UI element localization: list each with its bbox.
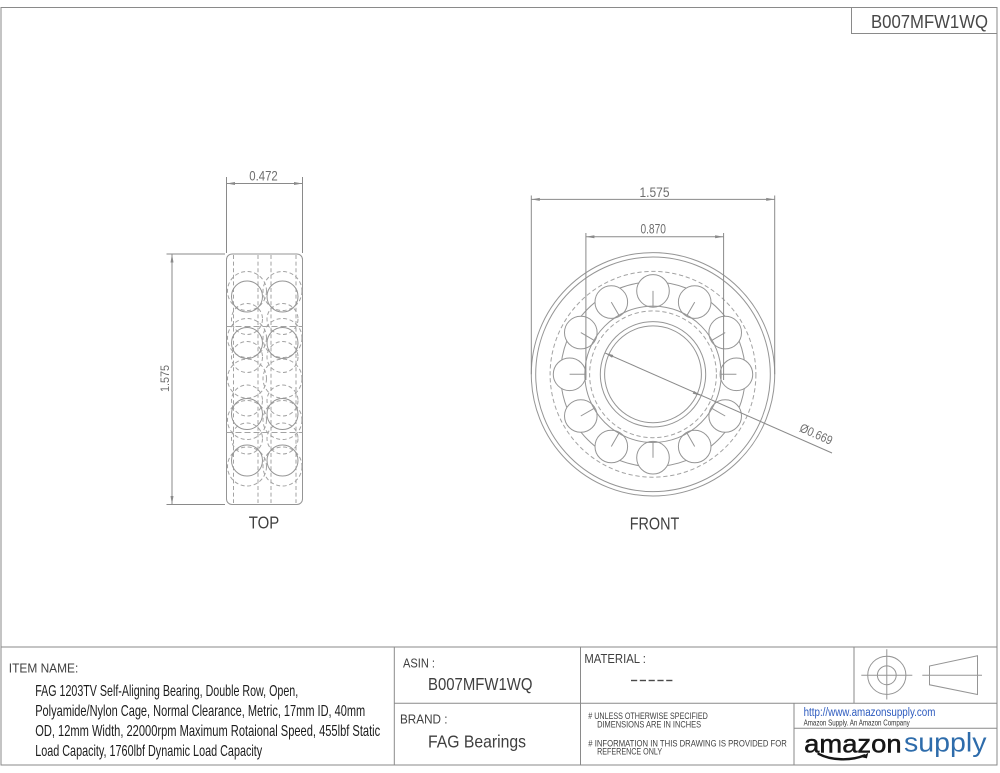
svg-text:DIMENSIONS ARE IN INCHES: DIMENSIONS ARE IN INCHES [597, 719, 701, 729]
svg-text:B007MFW1WQ: B007MFW1WQ [428, 674, 533, 694]
svg-text:ASIN :: ASIN : [403, 657, 435, 671]
svg-text:0.472: 0.472 [249, 167, 278, 183]
svg-text:ITEM NAME:: ITEM NAME: [9, 662, 79, 676]
svg-text:supply: supply [904, 728, 987, 758]
svg-text:Polyamide/Nylon Cage, Normal C: Polyamide/Nylon Cage, Normal Clearance, … [35, 703, 365, 720]
svg-text:REFERENCE ONLY: REFERENCE ONLY [597, 747, 662, 757]
svg-text:FAG 1203TV Self-Aligning Beari: FAG 1203TV Self-Aligning Bearing, Double… [35, 683, 298, 700]
svg-text:MATERIAL :: MATERIAL : [584, 651, 646, 666]
svg-text:FRONT: FRONT [630, 514, 680, 534]
svg-text:1.575: 1.575 [640, 184, 670, 200]
svg-text:B007MFW1WQ: B007MFW1WQ [871, 11, 988, 32]
svg-text:BRAND :: BRAND : [400, 713, 448, 727]
svg-text:0.870: 0.870 [640, 221, 666, 237]
svg-text:1.575: 1.575 [158, 365, 172, 392]
svg-text:OD, 12mm Width, 22000rpm Maxim: OD, 12mm Width, 22000rpm Maximum Rotaion… [35, 723, 380, 740]
svg-text:Amazon Supply. An Amazon Compa: Amazon Supply. An Amazon Company [804, 717, 911, 727]
svg-text:Load Capacity, 1760lbf Dynamic: Load Capacity, 1760lbf Dynamic Load Capa… [35, 743, 262, 760]
svg-text:TOP: TOP [249, 513, 280, 533]
svg-text:FAG Bearings: FAG Bearings [428, 732, 526, 752]
